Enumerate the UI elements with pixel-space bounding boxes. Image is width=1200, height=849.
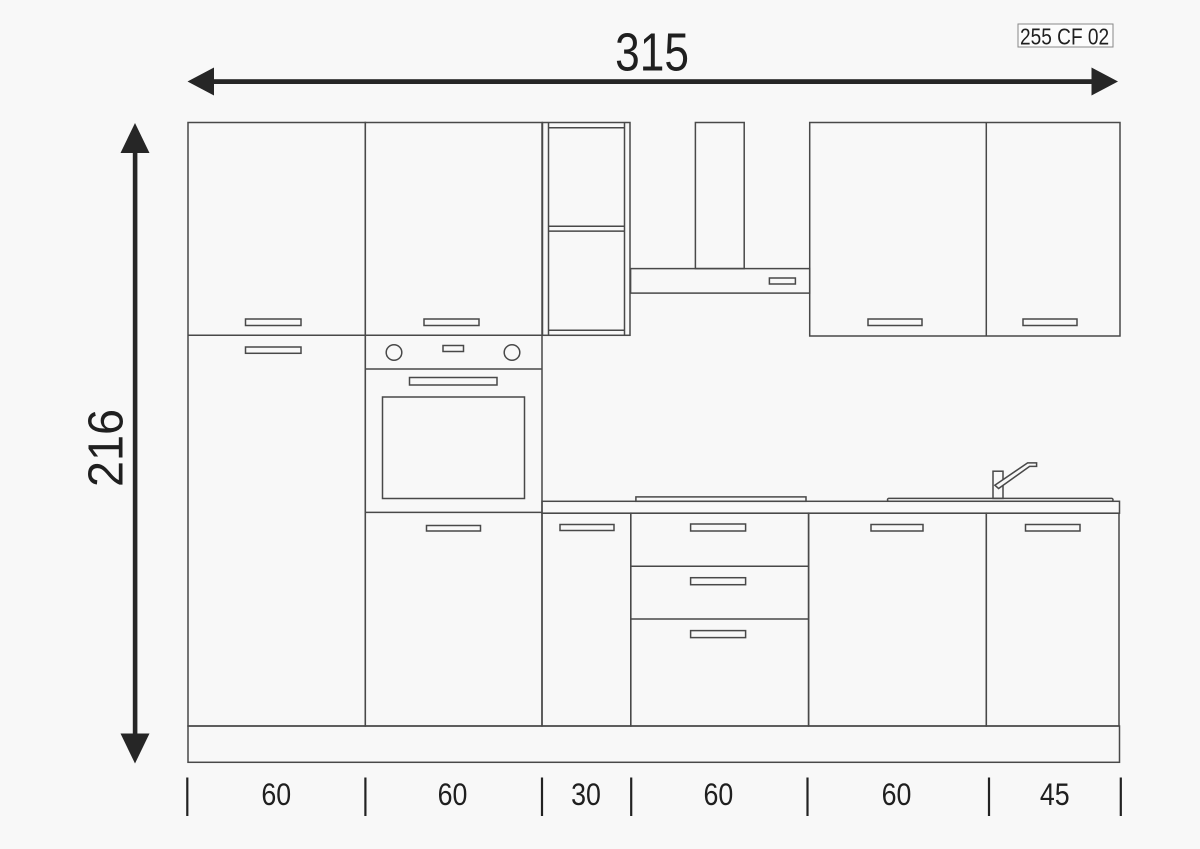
svg-text:216: 216 [78,409,134,487]
svg-text:255 CF 02: 255 CF 02 [1020,25,1109,50]
svg-text:60: 60 [261,778,291,812]
svg-text:60: 60 [704,778,734,812]
svg-text:60: 60 [438,778,468,812]
svg-text:30: 30 [571,778,601,812]
svg-text:45: 45 [1040,778,1070,812]
svg-text:60: 60 [882,778,912,812]
svg-text:315: 315 [615,22,689,82]
